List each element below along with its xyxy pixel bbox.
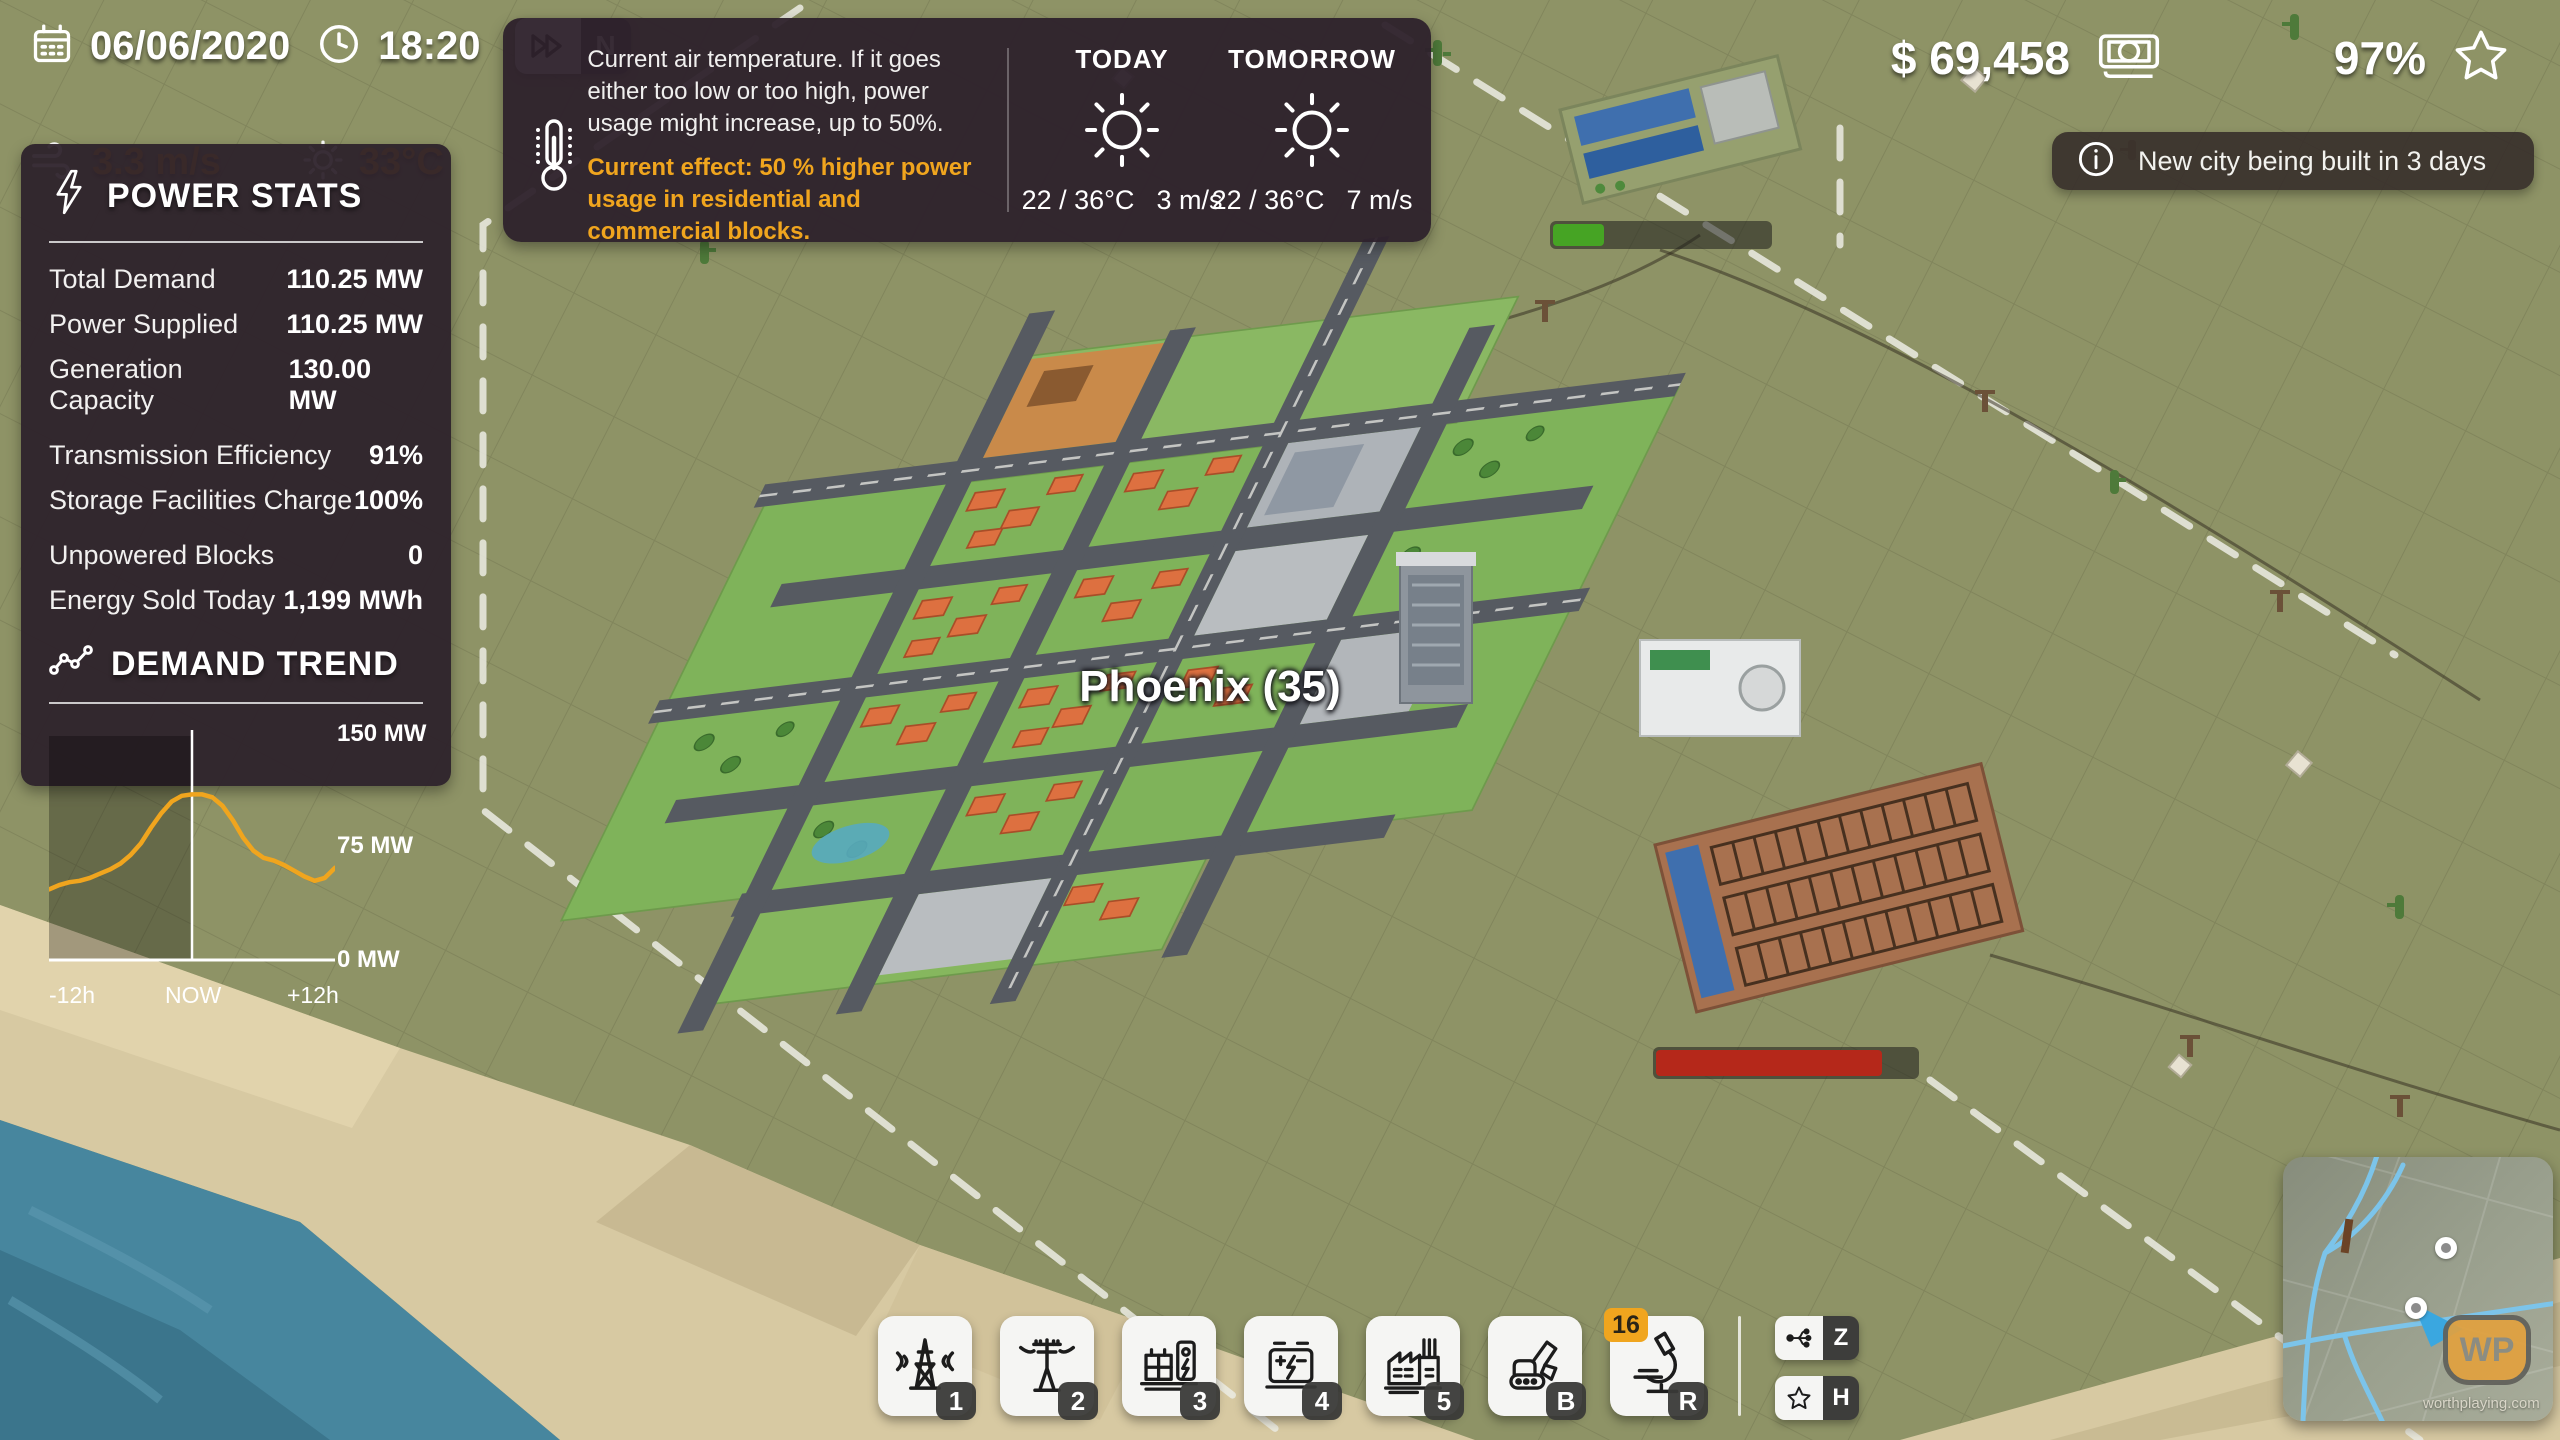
forecast-today-temps: 22 / 36°C [1022,185,1135,216]
forecast-tomorrow-wind: 7 m/s [1346,185,1412,216]
sun-forecast-icon [1269,75,1355,185]
stat-label: Generation Capacity [49,354,289,416]
stat-value: 110.25 MW [286,309,423,340]
stat-value: 91% [369,440,423,471]
stat-value: 1,199 MWh [283,585,423,616]
divider [49,702,423,704]
minimap[interactable]: WP worthplaying.com [2283,1157,2553,1421]
hotkey-badge: 1 [936,1382,976,1420]
toolbar-divider [1738,1316,1741,1416]
demand-trend-title: DEMAND TREND [111,645,399,684]
stat-value: 110.25 MW [286,264,423,295]
power-stats-title: POWER STATS [107,177,362,216]
satisfaction-text: 97% [2334,31,2426,85]
minimap-city-marker [2405,1297,2427,1319]
stat-row: Storage Facilities Charge100% [49,478,423,523]
calendar-icon [30,22,74,71]
achievements-button[interactable]: H [1775,1376,1859,1420]
build-transmission-tower-button[interactable]: 1 [878,1316,972,1416]
lightning-icon [49,168,89,225]
hotkey-badge: 5 [1424,1382,1464,1420]
build-factory-button[interactable]: 5 [1366,1316,1460,1416]
build-battery-button[interactable]: 4 [1244,1316,1338,1416]
stat-label: Total Demand [49,264,216,295]
stat-row: Energy Sold Today1,199 MWh [49,578,423,623]
stat-label: Energy Sold Today [49,585,275,616]
time-text: 18:20 [378,24,480,69]
research-button[interactable]: 16 R [1610,1316,1704,1416]
sun-forecast-icon [1079,75,1165,185]
stat-label: Power Supplied [49,309,238,340]
y-tick-150: 150 MW [337,720,437,748]
weather-effect: Current effect: 50 % higher power usage … [587,152,989,248]
substation-health-fill [1656,1050,1882,1076]
research-count-badge: 16 [1604,1308,1648,1342]
hotkey-badge: H [1823,1376,1859,1420]
hotkey-badge: B [1546,1382,1586,1420]
network-overlay-button[interactable]: Z [1775,1316,1859,1360]
stat-value: 100% [354,485,423,516]
hotkey-badge: Z [1823,1316,1859,1360]
city-name-label[interactable]: Phoenix (35) [1000,662,1420,712]
stat-label: Unpowered Blocks [49,540,274,571]
tooltip-divider [1007,48,1009,212]
watermark-logo: WP [2443,1315,2531,1385]
hotkey-badge: 2 [1058,1382,1098,1420]
minimap-city-marker [2435,1237,2457,1259]
star-icon [1775,1376,1823,1420]
star-icon [2452,26,2510,89]
bulldoze-button[interactable]: B [1488,1316,1582,1416]
substation-health-bar [1653,1047,1919,1079]
banknote-icon [2096,29,2162,86]
hotkey-badge: 3 [1180,1382,1220,1420]
stat-row: Generation Capacity130.00 MW [49,347,423,423]
forecast-today-label: TODAY [1075,44,1168,75]
notification-text: New city being built in 3 days [2138,146,2486,177]
date-text: 06/06/2020 [90,24,290,69]
weather-tooltip-panel: Current air temperature. If it goes eith… [503,18,1431,242]
network-icon [1775,1316,1823,1360]
y-tick-75: 75 MW [337,832,437,860]
stat-row: Total Demand110.25 MW [49,257,423,302]
money-text: $ 69,458 [1891,31,2070,85]
hotkey-badge: R [1668,1382,1708,1420]
build-toolbar: 1 2 3 [878,1316,1859,1420]
x-tick-now: NOW [165,982,221,1009]
build-power-pole-button[interactable]: 2 [1000,1316,1094,1416]
notification-toast[interactable]: New city being built in 3 days [2052,132,2534,190]
north-city-progress-fill [1553,224,1604,246]
clock-icon [316,21,362,72]
hospital-building [1640,640,1800,736]
power-stats-panel: POWER STATS Total Demand110.25 MW Power … [21,144,451,786]
forecast-tomorrow-temps: 22 / 36°C [1212,185,1325,216]
x-tick-plus12: +12h [287,982,339,1009]
stat-row: Power Supplied110.25 MW [49,302,423,347]
info-icon [2076,139,2116,184]
stat-label: Transmission Efficiency [49,440,331,471]
demand-trend-chart: 150 MW 75 MW 0 MW -12h NOW +12h [49,720,423,1020]
thermometer-icon [527,44,581,216]
forecast-today: TODAY 22 / 36°C 3 m/s [1027,44,1217,216]
stat-row: Transmission Efficiency91% [49,433,423,478]
game-viewport[interactable]: Phoenix (35) 06/06/2020 18:20 N [0,0,2560,1440]
stat-value: 130.00 MW [289,354,423,416]
x-tick-minus12: -12h [49,982,95,1009]
build-substation-button[interactable]: 3 [1122,1316,1216,1416]
trend-icon [49,643,93,686]
stat-row: Unpowered Blocks0 [49,533,423,578]
y-tick-0: 0 MW [337,946,437,974]
forecast-tomorrow-label: TOMORROW [1228,44,1396,75]
weather-description: Current air temperature. If it goes eith… [587,44,989,140]
stat-label: Storage Facilities Charge [49,485,352,516]
resources-bar: $ 69,458 97% [1891,26,2510,89]
forecast-tomorrow: TOMORROW 22 / 36°C 7 m/s [1217,44,1407,216]
divider [49,241,423,243]
stat-value: 0 [408,540,423,571]
watermark-text: worthplaying.com [2423,1395,2540,1412]
hotkey-badge: 4 [1302,1382,1342,1420]
north-city-progress-bar [1550,221,1772,249]
